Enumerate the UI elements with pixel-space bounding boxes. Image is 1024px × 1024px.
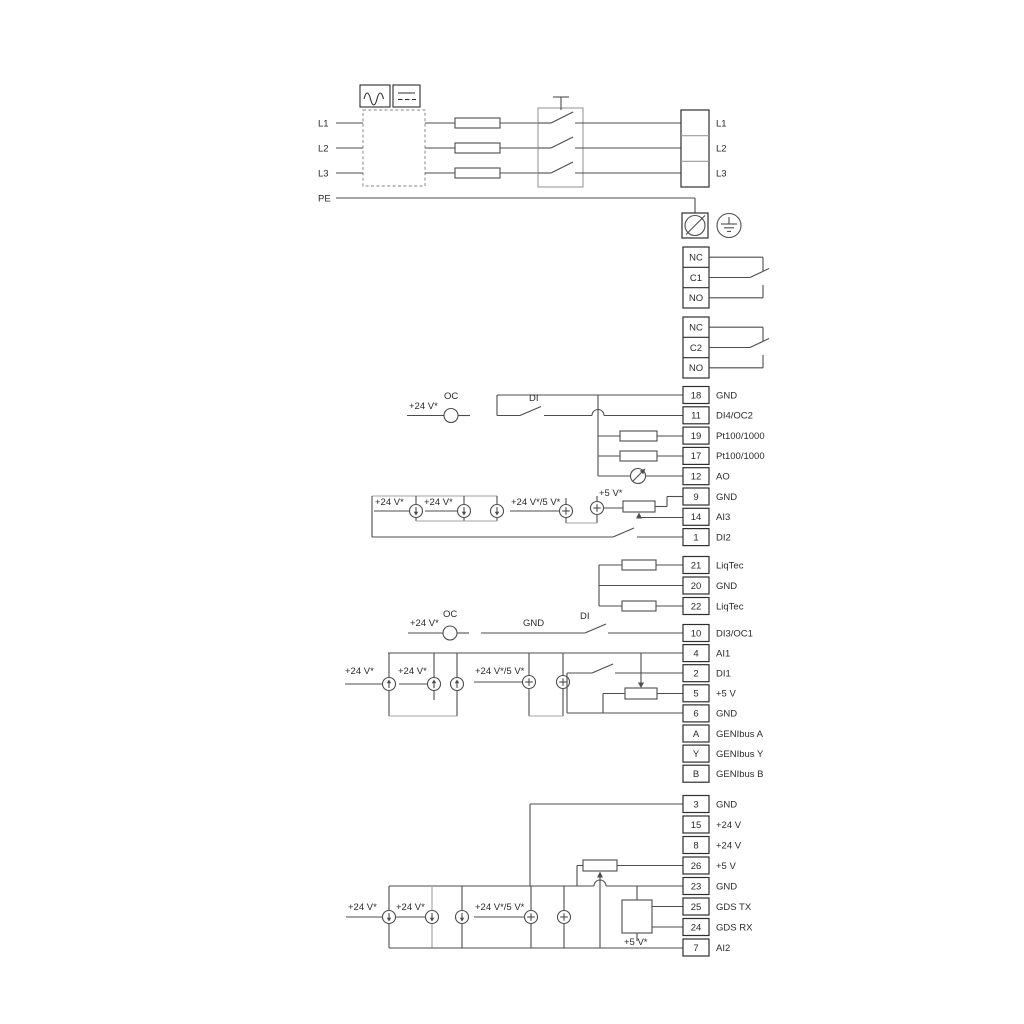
ai2-wiper-arrow [597,872,603,878]
ai2-potentiometer [583,860,617,871]
di3-gnd-label: GND [523,618,544,629]
di4-oc-label: OC [444,391,458,402]
relay1-contact-blade [750,269,769,278]
terminal-number-23: 23 [691,881,702,892]
open-collector-icon [443,626,457,640]
relay1-c1: C1 [690,273,702,284]
terminal-number-24: 24 [691,922,702,933]
terminal-number-8: 8 [693,840,698,851]
terminal-number-19: 19 [691,431,702,442]
di2-switch-blade [613,528,634,537]
terminal-number-17: 17 [691,451,702,462]
terminal-number-1: 1 [693,532,698,543]
mains-section: L1 L2 L3 PE [318,85,741,238]
current-source-icon [383,911,396,924]
di4-v24-label: +24 V* [409,401,438,412]
relay2-nc: NC [689,323,703,334]
terminal-label-23: GND [716,881,737,892]
pt100-resistor-2 [620,451,657,461]
di3-switch-blade [585,624,606,633]
terminal-number-14: 14 [691,512,702,523]
fuse-l3 [455,168,500,178]
mains-out-label-l3: L3 [716,169,727,180]
terminal-label-15: +24 V [716,820,742,831]
terminal-label-19: Pt100/1000 [716,431,765,442]
pulsating-current-icon [364,93,384,105]
ai2-gds-wiring: +24 V* +24 V* +24 V*/5 V* +5 V* [346,804,683,948]
current-source-icon [456,911,469,924]
terminal-number-5: 5 [693,689,698,700]
terminal-label-26: +5 V [716,861,736,872]
relay1: NC C1 NO [683,247,769,308]
open-collector-icon [444,409,458,423]
ai3-potentiometer [623,501,655,512]
terminal-label-10: DI3/OC1 [716,628,753,639]
current-source-icon [523,676,536,689]
ai3-v24-label-1: +24 V* [375,497,404,508]
terminal-label-5: +5 V [716,689,736,700]
gds-v5-label: +5 V* [624,937,648,948]
current-source-icon [383,678,396,691]
terminal-label-3: GND [716,799,737,810]
di3-di-label: DI [580,611,590,622]
terminal-label-8: +24 V [716,840,742,851]
terminal-label-9: GND [716,492,737,503]
ai1-v24-label-2: +24 V* [398,666,427,677]
di3-ai1-wiring: +24 V* OC GND DI +24 V* +24 V* +24 V*/5 … [345,609,683,716]
gds-sensor-box [622,900,652,933]
terminal-label-6: GND [716,709,737,720]
terminal-number-9: 9 [693,492,698,503]
current-source-icon [410,505,423,518]
terminal-label-2: DI1 [716,669,731,680]
ai1-potentiometer [625,688,657,699]
mains-in-label-pe: PE [318,194,331,205]
ai1-v24-5-label: +24 V*/5 V* [475,666,525,677]
current-source-icon [558,911,571,924]
ai3-v5-label: +5 V* [599,488,623,499]
terminal-label-A: GENIbus A [716,729,764,740]
terminal-label-21: LiqTec [716,560,744,571]
terminal-label-12: AO [716,472,730,483]
terminal-number-20: 20 [691,581,702,592]
current-source-icon [525,911,538,924]
dc-current-symbol-box [393,85,420,107]
wiring-diagram: L1 L2 L3 PE [0,0,1024,1024]
terminal-number-10: 10 [691,628,702,639]
current-source-icon [591,502,604,515]
terminal-label-11: DI4/OC2 [716,411,753,422]
terminal-block-liqtec: 21LiqTec20GND22LiqTec [683,557,744,615]
ai3-v24-label-2: +24 V* [424,497,453,508]
terminal-label-4: AI1 [716,648,730,659]
main-switch [538,97,681,187]
relay2: NC C2 NO [683,317,769,378]
terminal-number-3: 3 [693,799,698,810]
terminal-block-io-bottom: 3GND15+24 V8+24 V26+5 V23GND25GDS TX24GD… [683,796,753,957]
terminal-label-7: AI2 [716,943,730,954]
mains-in-label-l2: L2 [318,144,329,155]
liqtec-resistor-2 [622,601,656,611]
terminal-number-B: B [693,769,699,780]
terminal-label-B: GENIbus B [716,769,764,780]
terminal-label-17: Pt100/1000 [716,451,765,462]
liqtec-wiring [599,560,683,611]
ai1-v24-label-1: +24 V* [345,666,374,677]
current-source-icon [426,911,439,924]
terminal-number-15: 15 [691,820,702,831]
terminal-number-18: 18 [691,390,702,401]
terminal-number-11: 11 [691,411,701,422]
relay2-contact-blade [750,339,769,348]
terminal-number-A: A [693,729,700,740]
ai3-wiring: +24 V* +24 V* +24 V*/5 V* +5 V* [372,488,683,537]
liqtec-resistor-1 [622,560,656,570]
terminal-number-22: 22 [691,601,702,612]
terminal-label-18: GND [716,390,737,401]
terminal-label-25: GDS TX [716,902,752,913]
terminal-label-20: GND [716,581,737,592]
terminal-number-6: 6 [693,709,698,720]
terminal-label-14: AI3 [716,512,730,523]
ai1-wiper-arrow [638,683,644,689]
pt100-resistor-1 [620,431,657,441]
relay1-nc: NC [689,253,703,264]
terminal-label-1: DI2 [716,532,731,543]
terminal-number-21: 21 [691,560,702,571]
terminal-number-7: 7 [693,943,698,954]
relay2-c2: C2 [690,343,702,354]
phase-wires [336,123,538,173]
di3-oc-label: OC [443,609,457,620]
io-top-wiring: +24 V* OC DI [407,391,683,484]
current-source-icon [451,678,464,691]
pe-earth-section [336,198,741,238]
terminal-number-Y: Y [693,749,700,760]
terminal-label-Y: GENIbus Y [716,749,764,760]
terminal-number-25: 25 [691,902,702,913]
mains-in-label-l3: L3 [318,169,329,180]
di4-switch-blade [520,407,541,416]
ai2-v24-5-label: +24 V*/5 V* [475,902,525,913]
ai2-v24-label-2: +24 V* [396,902,425,913]
mains-out-label-l2: L2 [716,144,727,155]
terminal-block-io-top: 18GND11DI4/OC219Pt100/100017Pt100/100012… [683,387,765,546]
relay1-no: NO [689,293,703,304]
terminal-label-22: LiqTec [716,601,744,612]
rcd-box [363,110,425,186]
mains-terminal-block: L1 L2 L3 [681,110,727,187]
terminal-number-26: 26 [691,861,702,872]
current-source-icon [458,505,471,518]
current-source-icon [428,678,441,691]
terminal-number-4: 4 [693,648,698,659]
wiring-diagram-page: L1 L2 L3 PE [0,0,1024,1024]
current-source-icon [491,505,504,518]
di3-v24-label: +24 V* [410,618,439,629]
terminal-block-io-mid: 10DI3/OC14AI12DI15+5 V6GNDAGENIbus AYGEN… [683,625,764,783]
current-source-icon [560,505,573,518]
relay2-no: NO [689,363,703,374]
fuse-l1 [455,118,500,128]
mains-in-label-l1: L1 [318,119,329,130]
di4-di-label: DI [529,393,539,404]
terminal-label-24: GDS RX [716,922,753,933]
ai3-v24-5-label: +24 V*/5 V* [511,497,561,508]
terminal-number-12: 12 [691,472,702,483]
mains-out-label-l1: L1 [716,119,727,130]
fuse-l2 [455,143,500,153]
di1-switch-blade [592,664,613,673]
terminal-number-2: 2 [693,669,698,680]
ai2-v24-label-1: +24 V* [348,902,377,913]
